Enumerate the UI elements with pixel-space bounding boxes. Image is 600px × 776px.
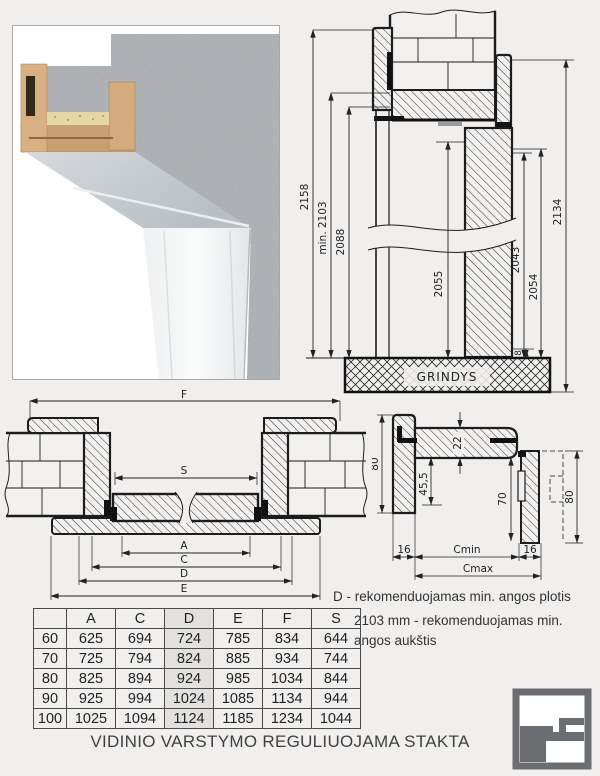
table-cell: 794	[116, 649, 165, 669]
table-row: 808258949249851034844	[34, 669, 361, 689]
dim-label: A	[180, 540, 188, 552]
table-cell: 724	[165, 629, 214, 649]
table-row: 60625694724785834644	[34, 629, 361, 649]
dim-label: S	[181, 465, 188, 477]
table-cell: 625	[67, 629, 116, 649]
vertical-section-drawing: GRINDYS 2158 min. 2103 2088 2055	[288, 2, 598, 400]
spec-sheet-page: GRINDYS 2158 min. 2103 2088 2055	[0, 0, 600, 776]
table-cell: 894	[116, 669, 165, 689]
dim-label: 22	[452, 436, 464, 449]
table-header-cell: E	[214, 609, 263, 629]
table-cell: 1185	[214, 709, 263, 729]
table-cell: 100	[34, 709, 67, 729]
width-note: D - rekomenduojamas min. angos plotis	[333, 589, 595, 604]
dim-label: 2043	[510, 247, 522, 274]
dim-label: 45,5	[418, 472, 430, 495]
table-cell: 924	[165, 669, 214, 689]
table-cell: 1094	[116, 709, 165, 729]
table-cell: 985	[214, 669, 263, 689]
dim-label: 2055	[433, 271, 445, 298]
table-cell: 1234	[263, 709, 312, 729]
table-cell: 1025	[67, 709, 116, 729]
table-cell: 90	[34, 689, 67, 709]
dim-label: D	[180, 568, 188, 580]
table-cell: 1124	[165, 709, 214, 729]
frame-profile-detail-drawing: 80 22 45,5 70 80 16 Cmin 16 Cmax	[372, 406, 598, 590]
dim-label: min. 2103	[317, 201, 329, 254]
table-cell: 834	[263, 629, 312, 649]
door-leaf-plan	[110, 492, 261, 523]
dim-label: 2158	[299, 184, 311, 211]
dim-label: 8	[514, 350, 524, 356]
dim-label: E	[181, 583, 188, 595]
table-cell: 934	[263, 649, 312, 669]
horizontal-section-drawing: F S A C D E	[0, 388, 372, 610]
frame-corner-photo	[12, 25, 280, 380]
floor-label: GRINDYS	[417, 370, 478, 384]
dim-label: Cmin	[453, 544, 480, 556]
dim-label: C	[180, 554, 187, 566]
floor-section: GRINDYS	[306, 358, 550, 392]
table-cell: 825	[67, 669, 116, 689]
table-cell: 70	[34, 649, 67, 669]
dim-label: 16	[523, 544, 537, 556]
page-title: VIDINIO VARSTYMO REGULIUOJAMA STAKTA	[20, 732, 540, 752]
size-table-head-row: ACDEFS	[34, 609, 361, 629]
table-cell: 1134	[263, 689, 312, 709]
table-cell: 1044	[312, 709, 361, 729]
table-row: 100102510941124118512341044	[34, 709, 361, 729]
table-cell: 80	[34, 669, 67, 689]
table-cell: 60	[34, 629, 67, 649]
table-cell: 885	[214, 649, 263, 669]
table-row: 70725794824885934744	[34, 649, 361, 669]
table-header-cell	[34, 609, 67, 629]
dim-label: 2134	[552, 198, 564, 225]
brand-logo	[512, 688, 592, 770]
dim-label: F	[181, 389, 187, 401]
height-note: 2103 mm - rekomenduojamas min. angos auk…	[354, 611, 594, 650]
table-header-cell: F	[263, 609, 312, 629]
dim-label: 80	[564, 490, 576, 503]
table-cell: 944	[312, 689, 361, 709]
table-cell: 1085	[214, 689, 263, 709]
table-cell: 824	[165, 649, 214, 669]
table-header-cell: S	[312, 609, 361, 629]
table-cell: 644	[312, 629, 361, 649]
dim-label: 16	[397, 544, 411, 556]
dim-label: 80	[372, 457, 381, 470]
masonry-wall-section	[390, 10, 495, 90]
table-cell: 1024	[165, 689, 214, 709]
frame-corner-photo-art	[13, 26, 279, 379]
table-cell: 694	[116, 629, 165, 649]
table-header-cell: A	[67, 609, 116, 629]
dim-label: 70	[497, 492, 509, 505]
adjustable-extension-dashed	[542, 451, 563, 542]
door-leaf-section	[368, 110, 516, 358]
table-cell: 744	[312, 649, 361, 669]
table-cell: 725	[67, 649, 116, 669]
table-cell: 785	[214, 629, 263, 649]
table-row: 90925994102410851134944	[34, 689, 361, 709]
table-cell: 925	[67, 689, 116, 709]
table-cell: 1034	[263, 669, 312, 689]
table-cell: 844	[312, 669, 361, 689]
dim-label: Cmax	[463, 563, 493, 575]
size-table: ACDEFS 606256947247858346447072579482488…	[33, 608, 361, 729]
table-cell: 994	[116, 689, 165, 709]
dim-label: 2088	[335, 229, 347, 256]
dim-label: 2054	[528, 273, 540, 300]
size-table-body: 6062569472478583464470725794824885934744…	[34, 629, 361, 729]
table-header-cell: C	[116, 609, 165, 629]
table-header-cell: D	[165, 609, 214, 629]
frame-groove	[26, 76, 35, 116]
